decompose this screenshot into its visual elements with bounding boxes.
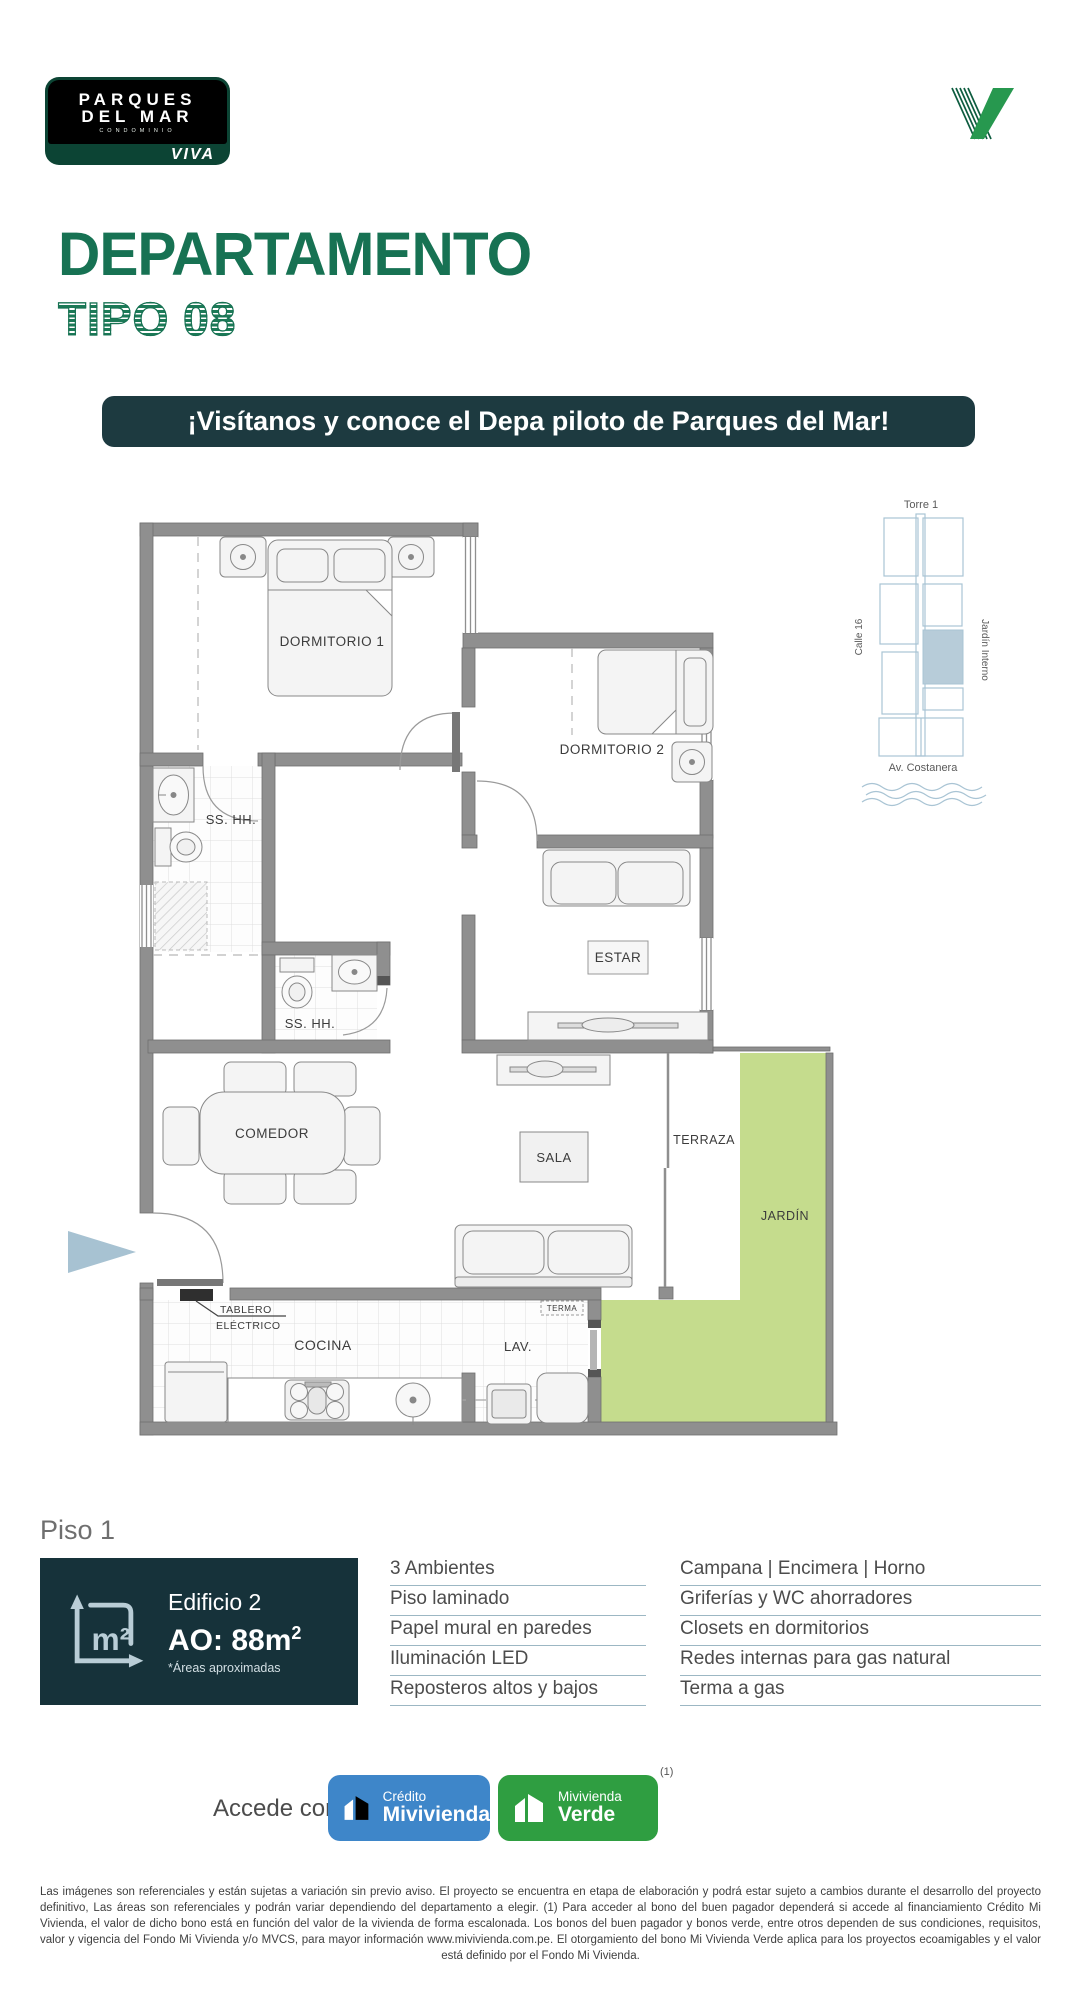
page-title: DEPARTAMENTO <box>58 224 531 285</box>
logo-viva-strip: VIVA <box>48 144 227 165</box>
svg-text:m²: m² <box>92 1621 131 1657</box>
loveseat-icon <box>543 850 690 906</box>
building-label: Edificio 2 <box>168 1588 301 1616</box>
square-meters-icon: m² <box>56 1584 152 1680</box>
laundry-sink-icon <box>537 1373 588 1423</box>
feature-item: Terma a gas <box>680 1676 1041 1706</box>
sea-waves-icon <box>862 784 986 806</box>
feature-item: Griferías y WC ahorradores <box>680 1586 1041 1616</box>
mivivienda-verde-button[interactable]: Mivivienda Verde <box>498 1775 658 1841</box>
access-label: Accede con: <box>213 1795 345 1823</box>
feature-item: Papel mural en paredes <box>390 1616 646 1646</box>
walls <box>140 523 837 1435</box>
site-map-avenue-label: Av. Costanera <box>889 762 959 774</box>
mivivienda-house-icon <box>342 1791 373 1825</box>
sink-icon <box>332 955 377 991</box>
viva-v-icon <box>948 85 1018 141</box>
washer-icon <box>487 1384 531 1424</box>
label-terma: TERMA <box>547 1304 578 1313</box>
room-label-terraza: TERRAZA <box>673 1133 735 1147</box>
room-label-dormitorio-1: DORMITORIO 1 <box>280 634 385 649</box>
site-map-street-label: Calle 16 <box>854 618 865 655</box>
nightstand-icon <box>388 537 434 577</box>
nightstand-icon <box>672 742 712 782</box>
floor-label: Piso 1 <box>40 1515 115 1546</box>
room-label-bath-1: SS. HH. <box>206 812 256 827</box>
promo-banner: ¡Visítanos y conoce el Depa piloto de Pa… <box>102 396 975 447</box>
area-value: AO: 88m2 <box>168 1616 301 1658</box>
logo-tagline: CONDOMINIO <box>99 128 175 134</box>
room-label-dormitorio-2: DORMITORIO 2 <box>560 742 665 757</box>
room-label-lavanderia: LAV. <box>504 1339 532 1354</box>
features-column-2: Campana | Encimera | Horno Griferías y W… <box>680 1556 1041 1706</box>
shower-area <box>155 882 207 950</box>
garden-area <box>601 1053 830 1422</box>
entrance-arrow-icon <box>68 1231 136 1273</box>
logo-line2: DEL MAR <box>81 108 193 125</box>
button-line1: Crédito <box>383 1790 490 1804</box>
room-label-cocina: COCINA <box>294 1337 352 1353</box>
room-label-estar: ESTAR <box>595 950 642 965</box>
fridge-icon <box>165 1362 227 1422</box>
viva-wordmark: VIVA <box>171 146 215 164</box>
double-bed-icon <box>268 540 392 696</box>
label-tablero-2: ELÉCTRICO <box>216 1319 281 1332</box>
feature-item: Campana | Encimera | Horno <box>680 1556 1041 1586</box>
toilet-icon <box>280 958 314 1008</box>
terrace-boundary <box>665 1053 668 1287</box>
room-label-jardin: JARDÍN <box>761 1208 809 1223</box>
sofa-icon <box>455 1225 632 1287</box>
site-map: Torre 1 Calle 16 Jardín Interno Av. Cost… <box>854 499 990 806</box>
site-map-highlighted-unit <box>923 630 963 684</box>
site-map-inner-garden-label: Jardín Interno <box>979 619 990 681</box>
stove-icon <box>285 1380 349 1420</box>
feature-item: Piso laminado <box>390 1586 646 1616</box>
floor-plan: DORMITORIO 1 DORMITORIO 2 SS. HH. SS. HH… <box>0 450 1081 1450</box>
footnote-marker: (1) <box>660 1766 673 1778</box>
label-tablero-1: TABLERO <box>220 1304 272 1316</box>
tv-console-icon <box>528 1012 708 1040</box>
button-line2: Mivivienda <box>383 1804 490 1826</box>
button-line1: Mivivienda <box>558 1790 622 1804</box>
page-subtitle: TIPO 08 <box>58 296 236 342</box>
logo-line1: PARQUES <box>79 91 197 108</box>
feature-item: Reposteros altos y bajos <box>390 1676 646 1706</box>
feature-item: Redes internas para gas natural <box>680 1646 1041 1676</box>
area-summary-box: m² Edificio 2 AO: 88m2 *Áreas aproximada… <box>40 1558 358 1705</box>
electrical-panel <box>180 1289 213 1301</box>
nightstand-icon <box>220 537 266 577</box>
mivivienda-house-icon <box>512 1791 548 1825</box>
button-line2: Verde <box>558 1804 622 1826</box>
feature-item: Closets en dormitorios <box>680 1616 1041 1646</box>
legal-disclaimer: Las imágenes son referenciales y están s… <box>40 1884 1041 1964</box>
tv-console-icon <box>497 1055 610 1085</box>
credito-mivivienda-button[interactable]: Crédito Mivivienda <box>328 1775 490 1841</box>
sink-icon <box>153 768 194 822</box>
room-label-sala: SALA <box>536 1150 571 1165</box>
feature-item: Iluminación LED <box>390 1646 646 1676</box>
feature-item: 3 Ambientes <box>390 1556 646 1586</box>
single-bed-icon <box>598 650 713 734</box>
features-column-1: 3 Ambientes Piso laminado Papel mural en… <box>390 1556 646 1706</box>
room-label-bath-2: SS. HH. <box>285 1016 335 1031</box>
area-note: *Áreas aproximadas <box>168 1661 301 1675</box>
logo-wordmark: PARQUES DEL MAR CONDOMINIO <box>48 80 227 144</box>
room-label-comedor: COMEDOR <box>235 1126 309 1141</box>
site-map-tower-label: Torre 1 <box>904 499 938 511</box>
parques-del-mar-logo: PARQUES DEL MAR CONDOMINIO VIVA <box>45 77 230 165</box>
